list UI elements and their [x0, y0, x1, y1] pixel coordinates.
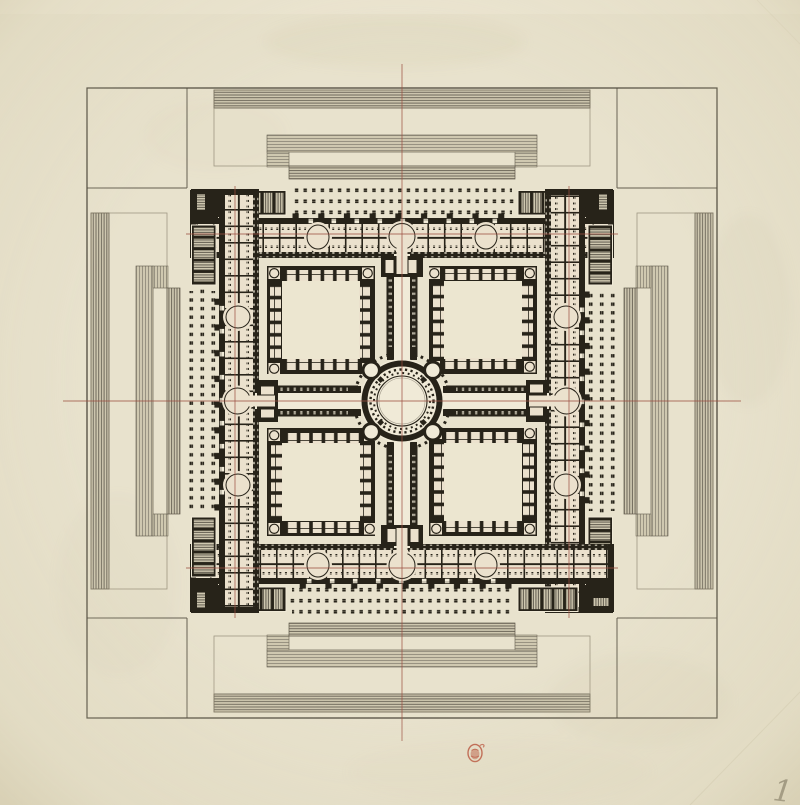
rotunda-lobe	[425, 362, 441, 378]
courtyard-ne	[429, 266, 538, 374]
plan-drawing-svg: 1	[0, 0, 800, 805]
courtyard-nw	[267, 266, 375, 375]
rotunda-lobe	[363, 362, 379, 378]
rotunda-lobe	[425, 424, 441, 440]
top-light-strip	[0, 0, 800, 14]
page-number: 1	[771, 773, 794, 805]
engraved-floor-plan-sheet: 1	[0, 0, 800, 805]
rotunda-lobe	[363, 424, 379, 440]
courtyard-se	[429, 428, 537, 537]
courtyard-sw	[267, 428, 376, 536]
